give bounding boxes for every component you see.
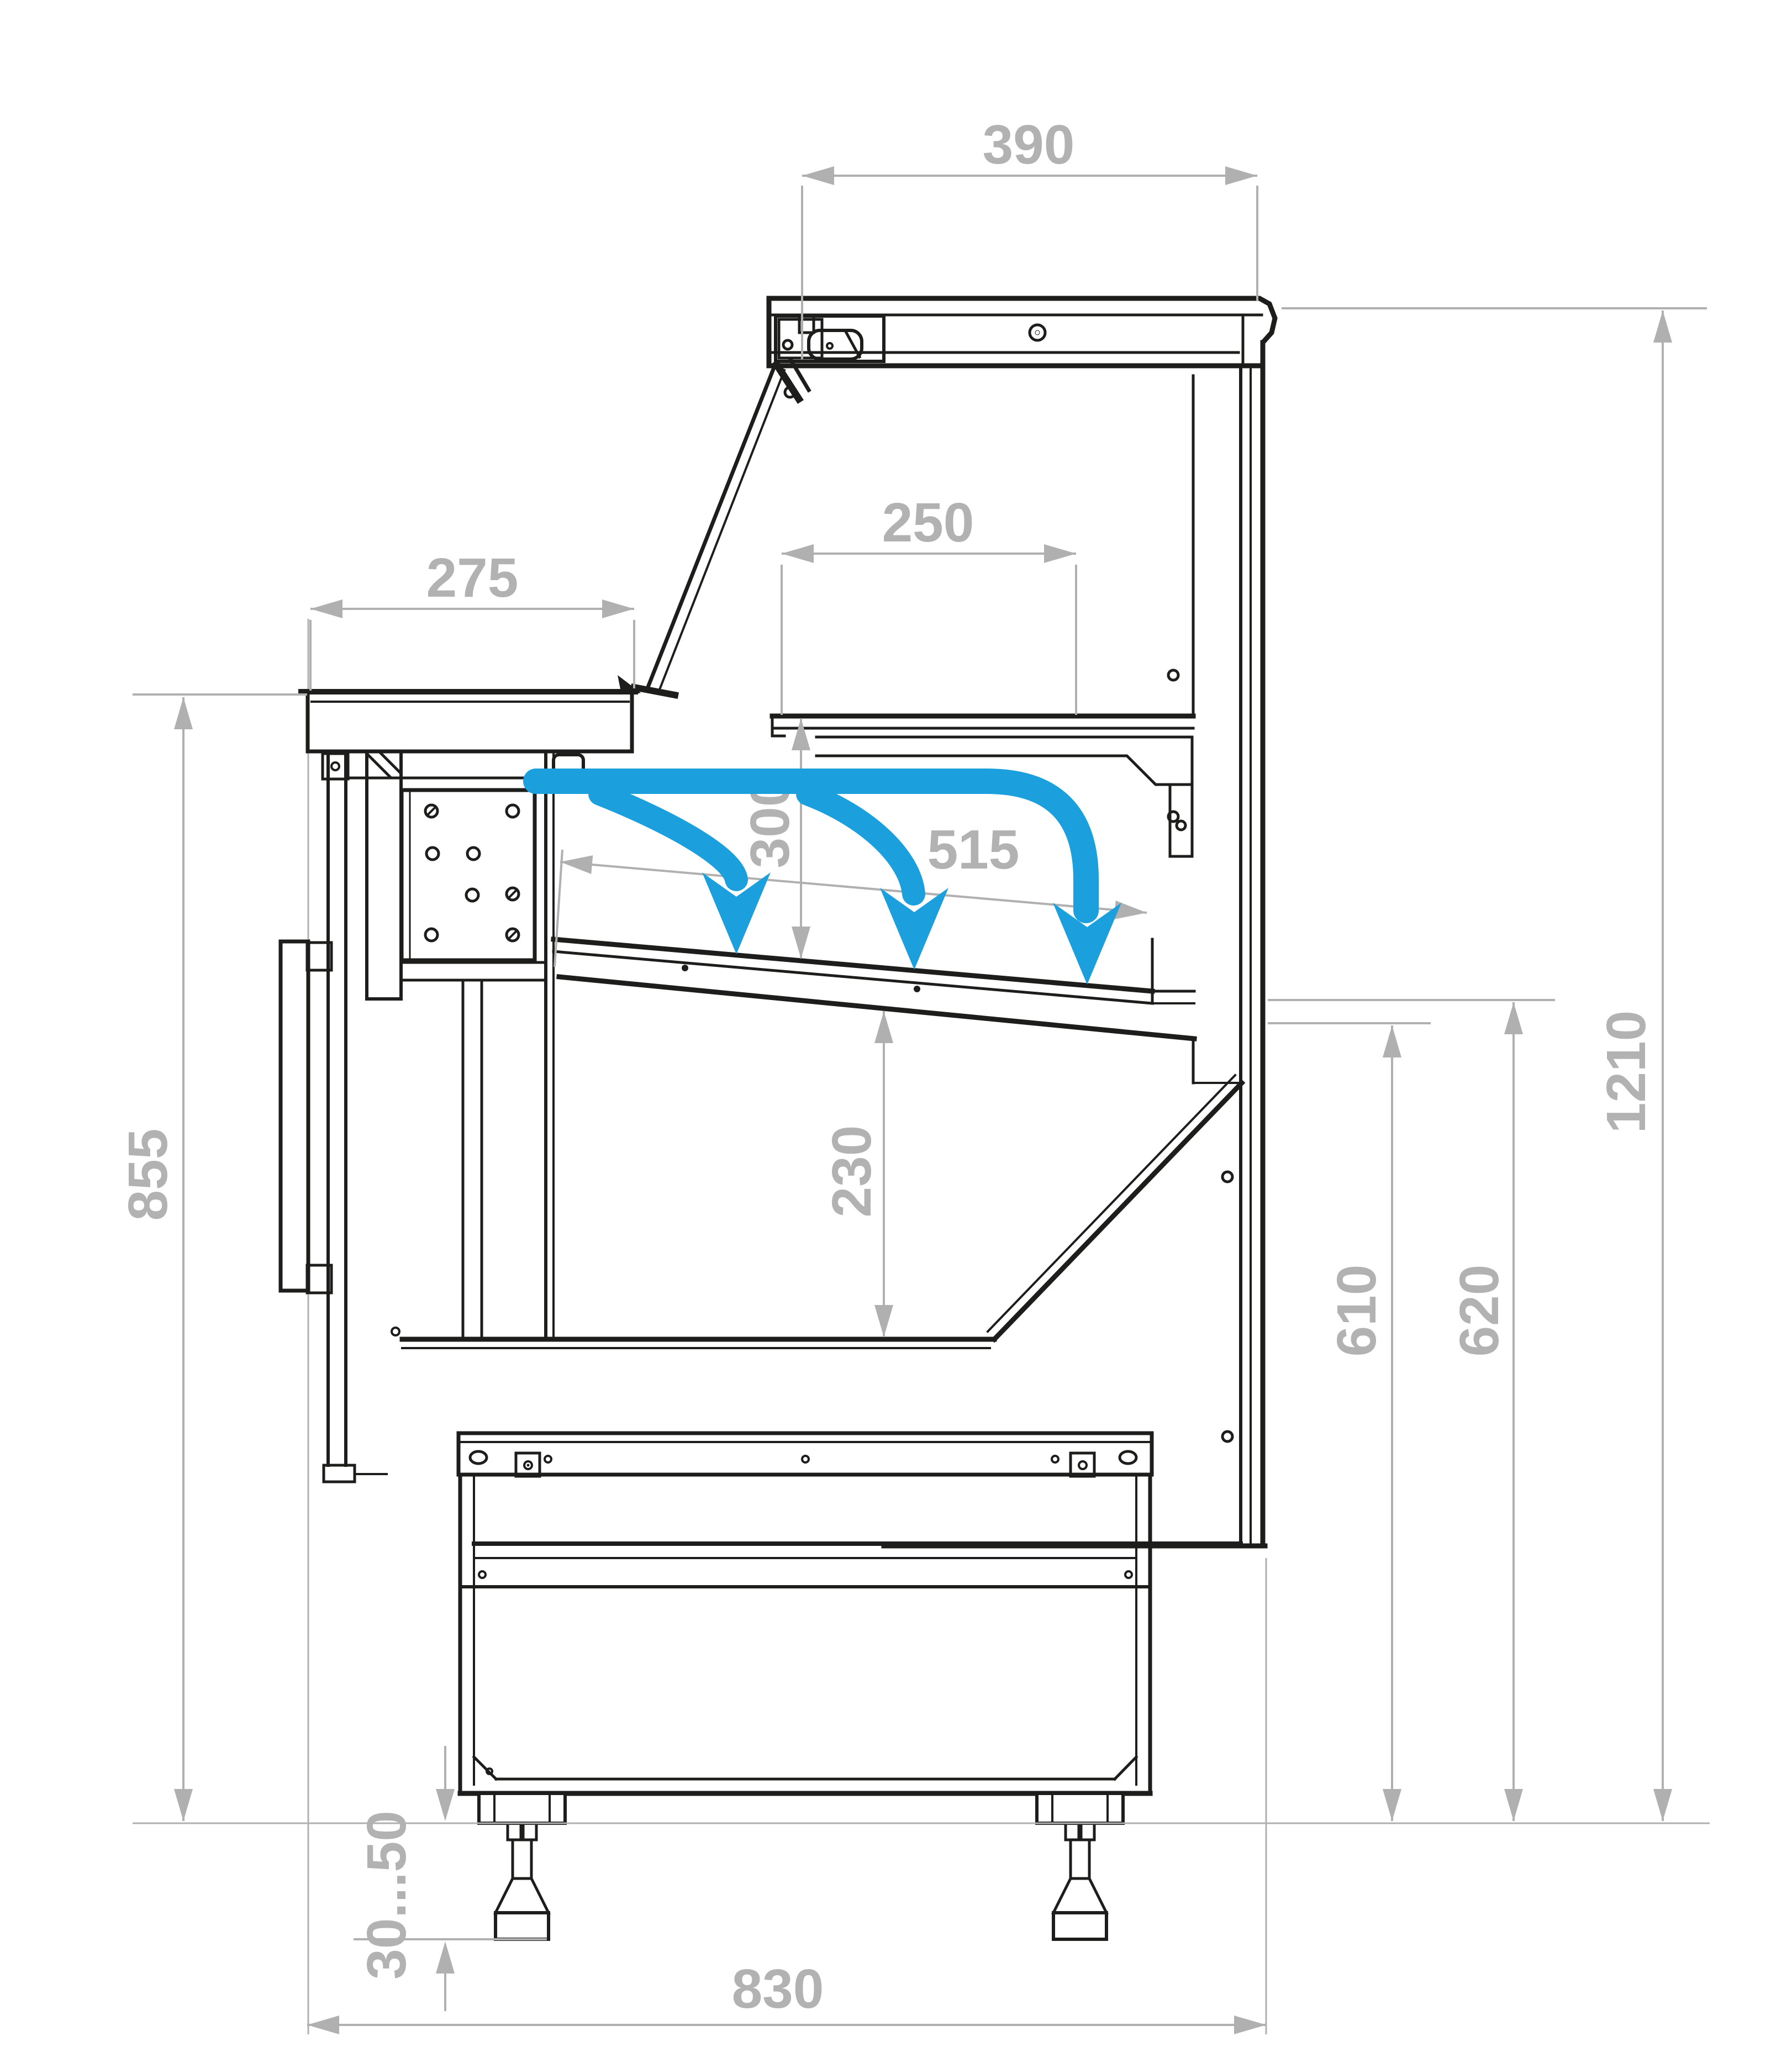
dim-shelf-clearance: 300 [739,718,810,959]
technical-drawing-page: 390 250 275 300 515 230 [0,0,1792,2047]
drawing-line [1504,1789,1523,1821]
dim-counter-height: 855 [117,694,307,1821]
drawing-line [496,1878,549,1913]
drawing-line [508,1823,521,1840]
drawing-line [1222,1172,1232,1182]
drawing-line [174,1789,193,1821]
drawing-line [1222,1432,1232,1441]
drawing-line [660,370,784,690]
drawing-line [782,544,814,563]
drawing-line [513,1840,531,1878]
drawing-line [174,697,193,729]
drawing-line [554,951,1152,1003]
drawing-line [1035,330,1040,335]
front-bumper-panel [281,941,308,1291]
drawing-line [994,1083,1242,1339]
drawing-line [1114,901,1148,922]
dim-overall-height: 1210 [1282,308,1707,1821]
drawing-line [1071,1840,1089,1878]
fan-plate [402,790,546,980]
drawing-line [527,1464,530,1467]
base-frame [458,1433,1241,1793]
drawing-line [496,1913,549,1939]
dim-label-610: 610 [1326,1265,1388,1357]
counter-top [301,692,635,779]
dim-counter-depth: 275 [310,547,634,691]
drawing-line [792,927,810,959]
drawing-line [560,853,593,874]
drawing-line [602,599,634,618]
drawing-line [634,687,675,695]
dim-label-275: 275 [426,547,519,609]
drawing-line [436,1789,455,1821]
drawing-line [874,1011,893,1043]
drawing-line [1066,1823,1079,1840]
drawing-line [523,1823,536,1840]
drawing-line [392,1328,399,1335]
drawing-line [792,718,810,750]
drawing-line [1053,1913,1106,1939]
drawing-line [560,862,1147,913]
canopy [769,298,1275,399]
drawing-line [1653,1789,1672,1821]
drawing-line [1383,1025,1401,1057]
dim-label-620: 620 [1448,1265,1510,1357]
drawing-line [1081,1823,1094,1840]
drawing-line [555,850,562,967]
front-panels [281,753,387,1482]
drawing-line [474,1757,496,1779]
drawing-line [1125,1571,1132,1578]
drawing-line [1234,2016,1266,2034]
drawing-line [1168,670,1178,680]
drawing-line [310,599,342,618]
drawing-line [988,1075,1235,1332]
drawing-line [479,1793,565,1823]
support-column [367,751,401,999]
dim-label-250: 250 [882,492,974,554]
drawing-line [1504,1002,1523,1034]
drawing-line [647,369,773,688]
drawing-line [1225,166,1257,185]
upper-shelf [772,716,1193,736]
dim-deck-height-610: 610 [1268,1023,1431,1821]
airflow-arrows [536,781,1121,985]
drawing-line [1383,1789,1401,1821]
drawing-line [1053,1878,1106,1913]
drawing-line [436,1941,455,1974]
drawing-line [479,1571,486,1578]
refrigerated-counter-section-drawing: 390 250 275 300 515 230 [0,0,1792,2047]
drawing-line [307,2016,339,2034]
adjustable-foot-left [479,1793,565,1939]
dim-label-830: 830 [732,1958,824,2020]
drawing-line [1037,1793,1123,1823]
drawing-line [1653,311,1672,343]
dim-label-855: 855 [117,1129,179,1221]
dim-label-30-50: 30...50 [356,1811,418,1980]
dim-label-390: 390 [983,114,1075,176]
drawing-line [458,1433,1152,1475]
drawing-line [802,166,834,185]
dim-label-515: 515 [927,819,1020,881]
airflow-curve-mid-icon [808,794,914,894]
drawing-line [331,762,339,770]
dim-deck-height-620: 620 [1268,1000,1555,1821]
drawing-line [1115,1757,1136,1779]
drawing-line [682,965,688,971]
dim-label-230: 230 [821,1125,883,1218]
drawing-line [1044,544,1076,563]
dim-label-1210: 1210 [1595,1011,1657,1133]
drawing-line [874,1305,893,1337]
drawing-line [1177,821,1185,830]
front-glass [618,369,784,697]
drawing-line [324,1465,355,1482]
drawing-line [914,986,920,992]
dim-upper-shelf-depth: 250 [782,492,1076,715]
dim-well-depth: 230 [821,1011,893,1337]
adjustable-foot-right [1037,1793,1123,1939]
